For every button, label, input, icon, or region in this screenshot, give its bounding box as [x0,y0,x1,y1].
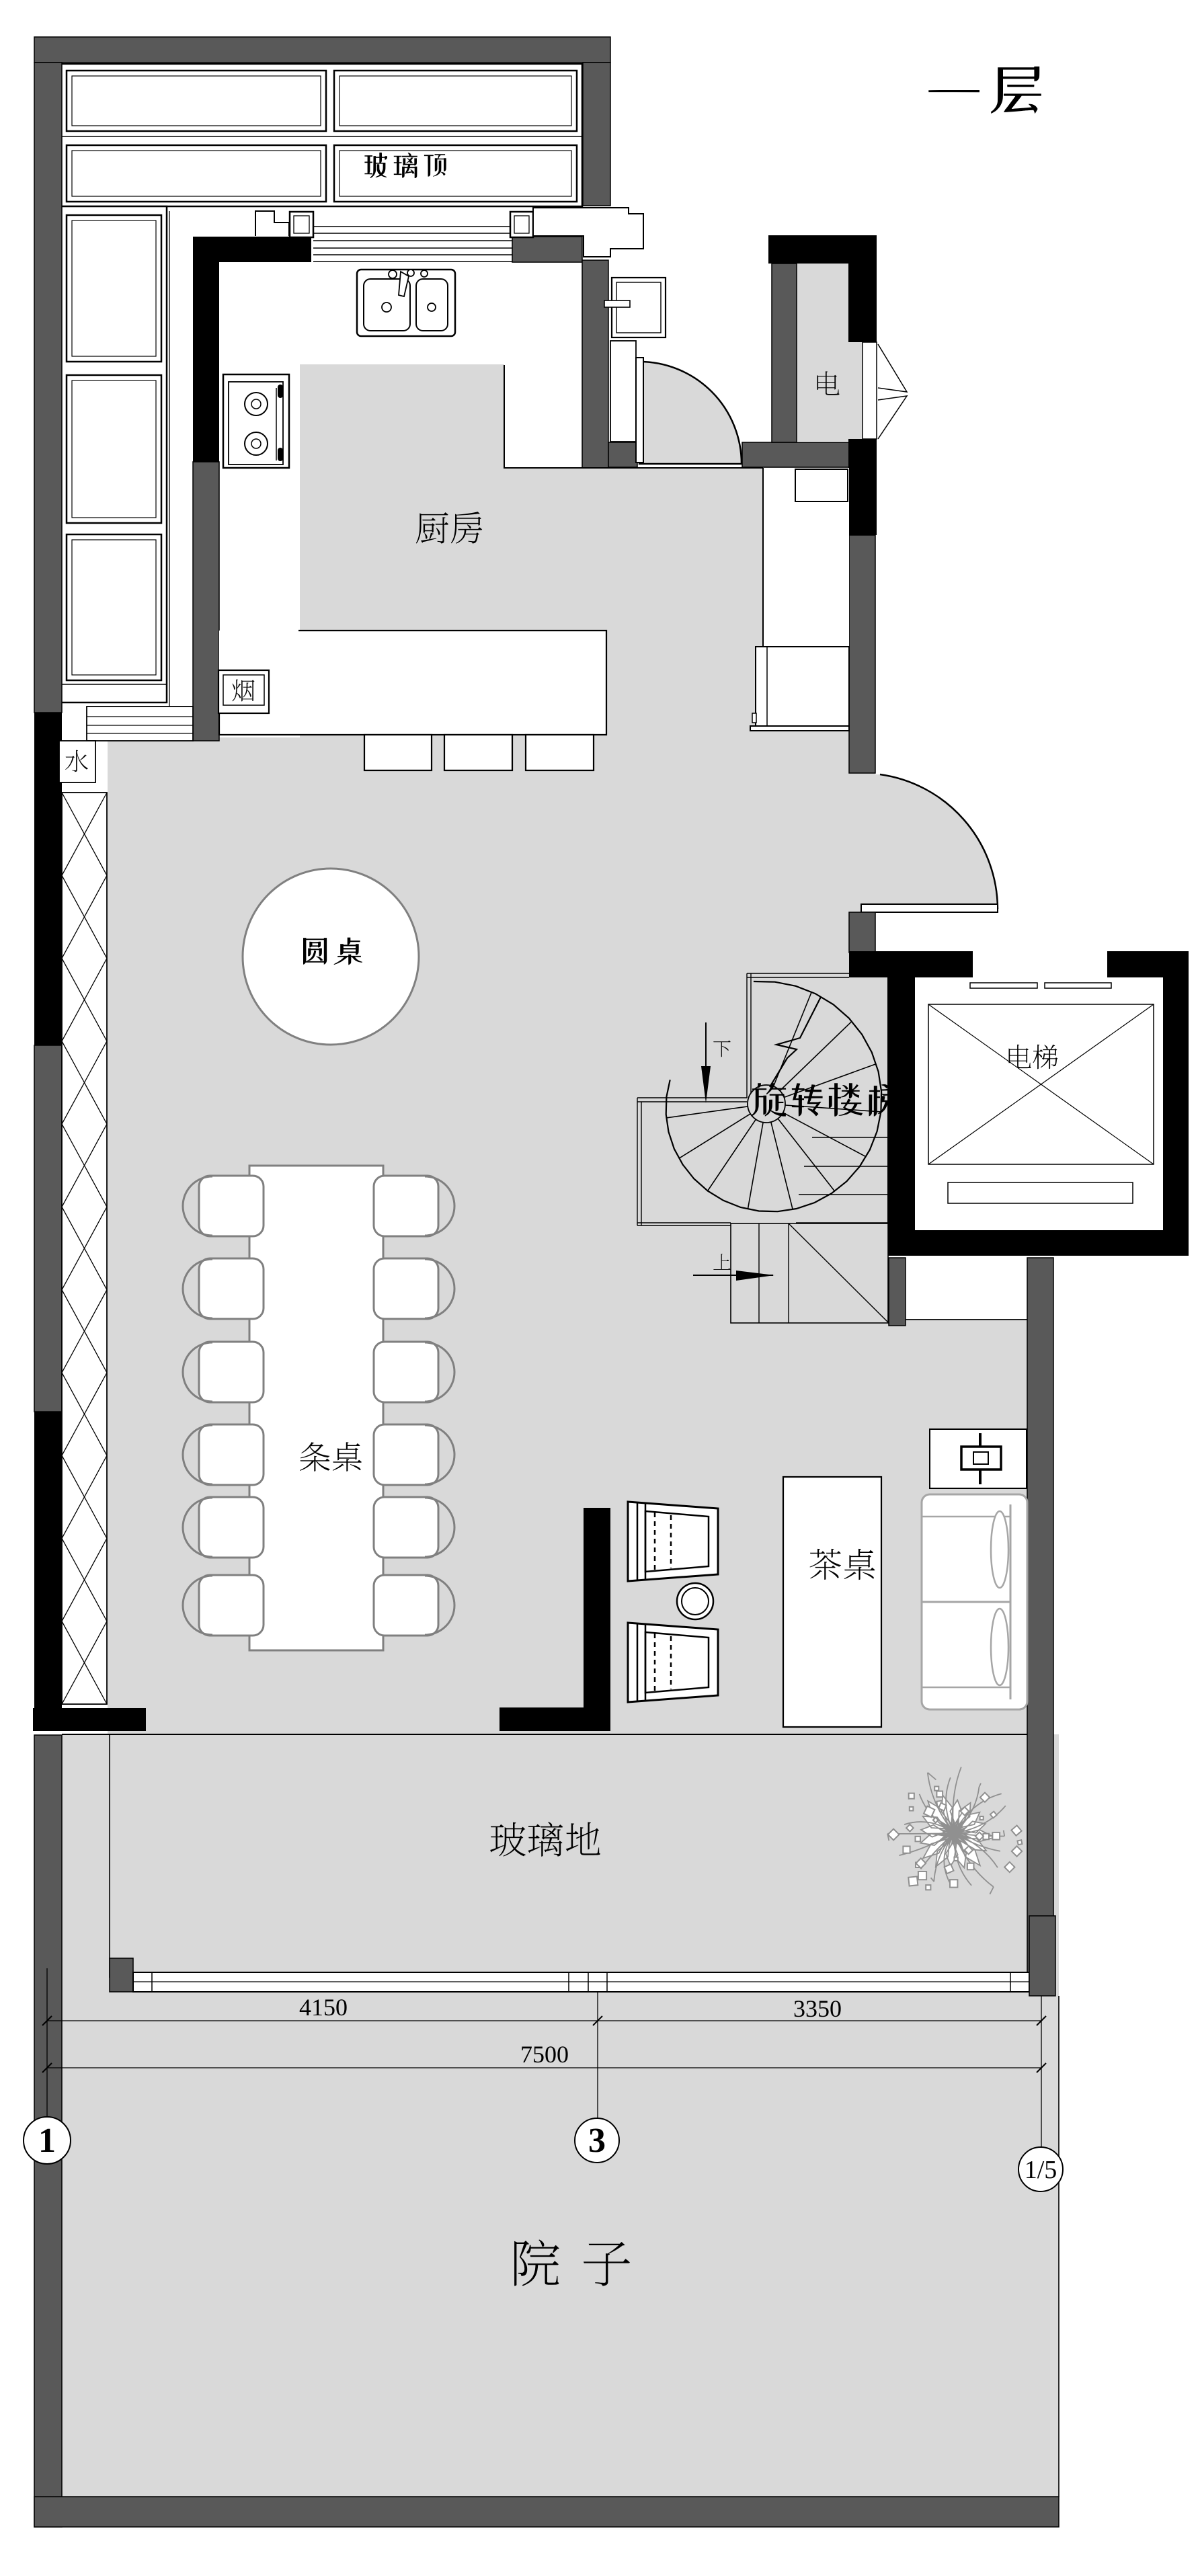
svg-text:4150: 4150 [299,1994,348,2021]
svg-text:3: 3 [588,2122,606,2160]
svg-text:7500: 7500 [520,2041,569,2068]
svg-text:1: 1 [38,2122,56,2160]
svg-text:3350: 3350 [793,1995,842,2022]
svg-text:1/5: 1/5 [1025,2156,1057,2184]
